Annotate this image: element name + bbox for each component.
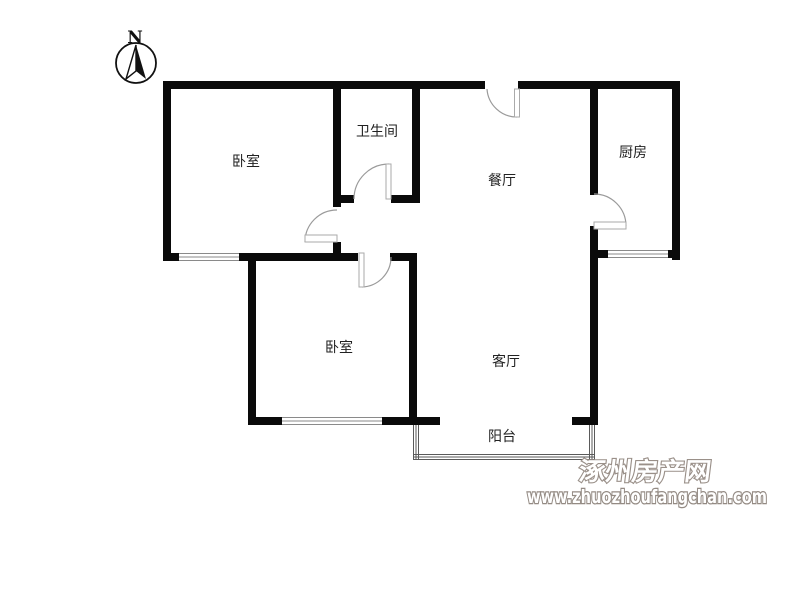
- walls: [163, 81, 680, 425]
- watermark: 涿州房产网 www.zhuozhoufangchan.com: [527, 457, 767, 508]
- room-label-bathroom: 卫生间: [356, 124, 398, 140]
- wall-bathroom-bottom-left: [333, 195, 354, 203]
- door-leaf: [515, 89, 520, 117]
- window-bedroom-top: [179, 253, 239, 261]
- floor-plan-page: N: [0, 0, 800, 600]
- door-swing-arc: [487, 89, 517, 117]
- wall-bathroom-bottom-right: [391, 195, 420, 203]
- floor-plan-canvas: N: [0, 0, 800, 600]
- door-bedroom-top: [305, 210, 337, 242]
- wall-bedroom1-bathroom-divider: [333, 81, 341, 207]
- watermark-site-url: www.zhuozhoufangchan.com: [527, 486, 767, 508]
- wall-top-right-segment: [518, 81, 680, 89]
- balcony-glass-bottom: [413, 455, 595, 460]
- room-label-balcony: 阳台: [488, 429, 516, 445]
- door-swing-arc: [362, 257, 391, 287]
- room-label-living-room: 客厅: [492, 353, 520, 370]
- door-swing-arc: [594, 194, 626, 226]
- wall-outer-right: [672, 81, 680, 260]
- wall-bathroom-right: [412, 81, 420, 203]
- room-label-dining-room: 餐厅: [488, 173, 516, 189]
- door-swing-arc: [354, 164, 389, 199]
- door-leaf: [305, 235, 337, 242]
- window-kitchen: [608, 250, 668, 258]
- door-bedroom-bottom: [359, 253, 391, 287]
- door-leaf: [594, 222, 626, 229]
- room-label-kitchen: 厨房: [619, 145, 647, 161]
- room-label-bedroom-top: 卧室: [232, 153, 260, 170]
- wall-bedroom2-left: [248, 253, 256, 425]
- wall-kitchen-divider-upper: [590, 81, 598, 195]
- room-labels: 卧室 卫生间 餐厅 厨房 卧室 客厅 阳台: [232, 124, 647, 445]
- door-leaf: [386, 164, 391, 199]
- compass: N: [116, 28, 156, 83]
- wall-top-left-segment: [163, 81, 485, 89]
- door-kitchen: [594, 194, 626, 229]
- door-leaf: [359, 253, 364, 287]
- room-label-bedroom-bottom: 卧室: [325, 339, 353, 356]
- wall-bedroom2-right: [409, 253, 417, 425]
- door-bathroom: [354, 164, 391, 199]
- watermark-site-name: 涿州房产网: [577, 457, 713, 486]
- wall-outer-left: [163, 81, 171, 261]
- window-bedroom-bottom: [282, 417, 382, 425]
- door-entrance: [487, 89, 520, 117]
